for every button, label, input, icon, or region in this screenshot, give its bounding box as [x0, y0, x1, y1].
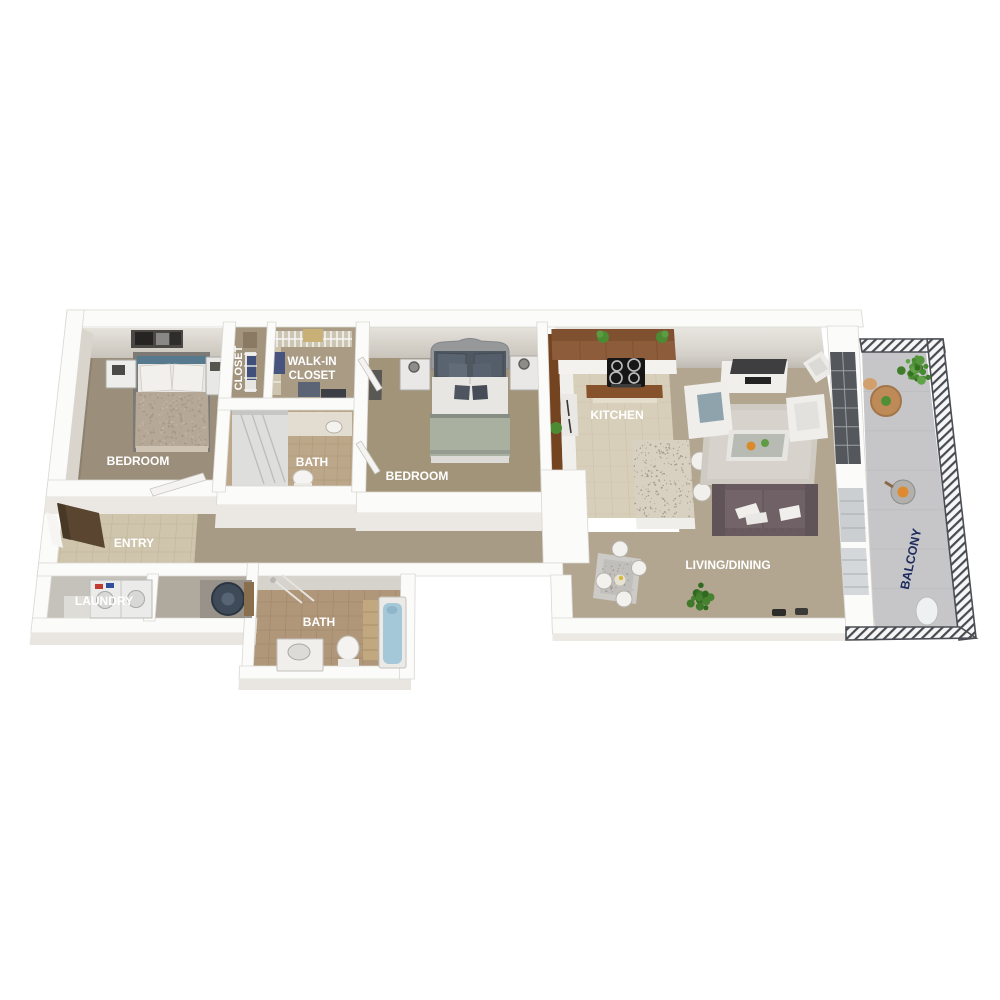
- svg-text:LIVING/DINING: LIVING/DINING: [685, 558, 770, 572]
- svg-text:CLOSET: CLOSET: [233, 345, 245, 390]
- svg-text:LAUNDRY: LAUNDRY: [75, 594, 133, 608]
- svg-text:WALK-IN: WALK-IN: [287, 356, 336, 368]
- svg-text:BATH: BATH: [296, 455, 328, 469]
- svg-text:BEDROOM: BEDROOM: [386, 469, 449, 483]
- svg-text:BEDROOM: BEDROOM: [107, 454, 170, 468]
- svg-text:BATH: BATH: [303, 615, 335, 629]
- svg-text:KITCHEN: KITCHEN: [590, 408, 643, 422]
- svg-text:CLOSET: CLOSET: [289, 370, 336, 382]
- svg-text:ENTRY: ENTRY: [114, 536, 154, 550]
